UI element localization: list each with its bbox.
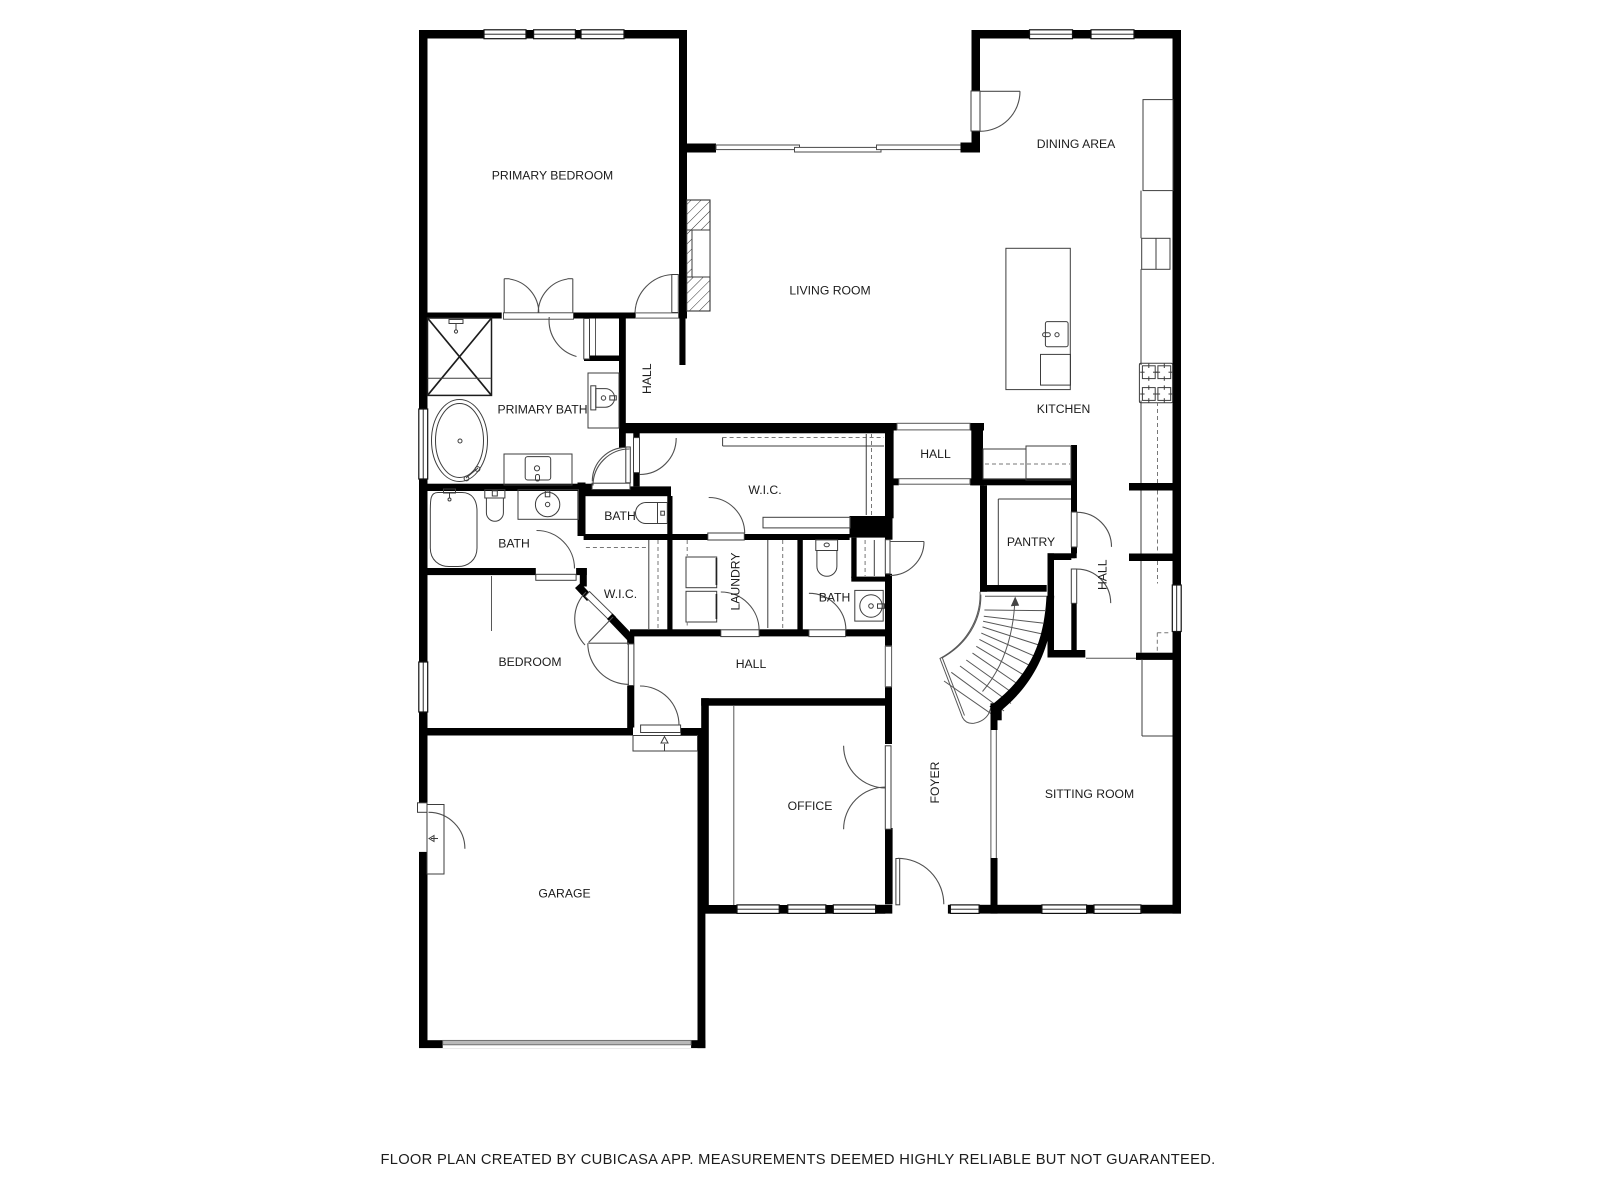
svg-text:OFFICE: OFFICE (788, 799, 833, 813)
svg-text:PANTRY: PANTRY (1007, 535, 1055, 549)
svg-text:FOYER: FOYER (928, 761, 942, 803)
svg-text:HALL: HALL (640, 363, 654, 394)
svg-text:PRIMARY BATH: PRIMARY BATH (497, 403, 587, 417)
svg-text:W.I.C.: W.I.C. (604, 587, 637, 601)
svg-text:SITTING ROOM: SITTING ROOM (1045, 787, 1134, 801)
svg-text:LAUNDRY: LAUNDRY (729, 552, 743, 610)
svg-text:LIVING ROOM: LIVING ROOM (789, 284, 870, 298)
svg-text:FLOOR PLAN CREATED BY CUBICASA: FLOOR PLAN CREATED BY CUBICASA APP. MEAS… (380, 1152, 1215, 1168)
svg-text:BATH: BATH (819, 591, 851, 605)
svg-text:PRIMARY BEDROOM: PRIMARY BEDROOM (492, 169, 613, 183)
svg-text:GARAGE: GARAGE (538, 887, 590, 901)
svg-text:HALL: HALL (736, 657, 767, 671)
svg-text:BATH: BATH (604, 509, 636, 523)
svg-text:BATH: BATH (498, 537, 530, 551)
svg-text:HALL: HALL (920, 447, 951, 461)
svg-text:DINING AREA: DINING AREA (1037, 137, 1116, 151)
svg-text:KITCHEN: KITCHEN (1037, 402, 1091, 416)
svg-text:HALL: HALL (1096, 559, 1110, 590)
svg-text:W.I.C.: W.I.C. (748, 483, 781, 497)
svg-text:BEDROOM: BEDROOM (499, 655, 562, 669)
